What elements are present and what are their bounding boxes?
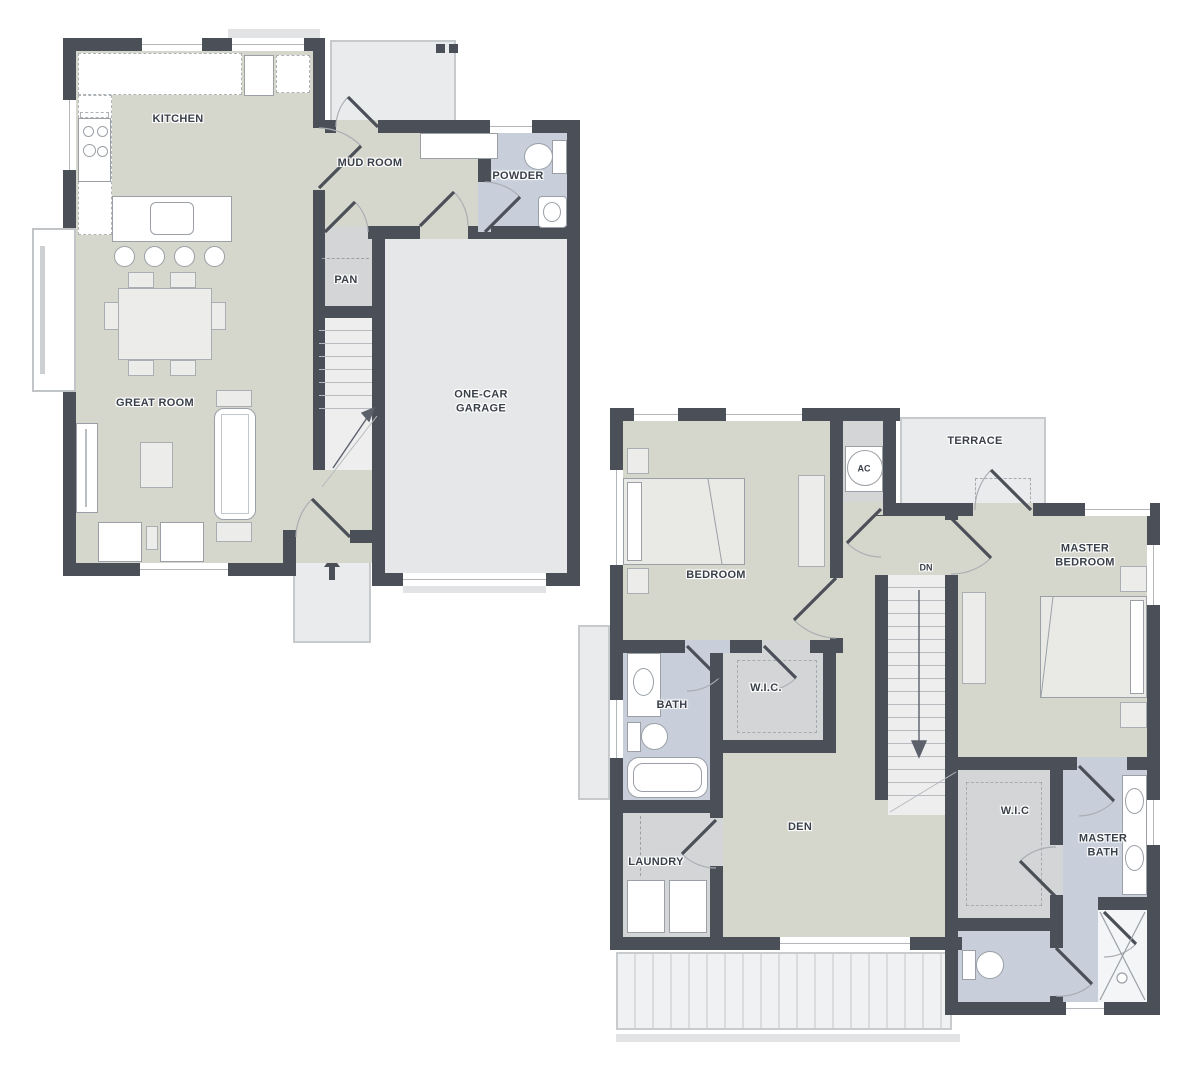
nightstand (1120, 566, 1147, 592)
window (232, 38, 304, 51)
dining-chair (128, 360, 154, 376)
coffee-table (140, 442, 173, 488)
wall-segment (372, 226, 385, 586)
kitchen-appliance (276, 55, 310, 93)
sink-basin (543, 202, 561, 222)
wall-segment (610, 800, 723, 813)
toilet-tank (962, 950, 976, 980)
wall-segment (1098, 897, 1160, 910)
bar-stool (174, 246, 195, 267)
stairs-treads (888, 575, 945, 800)
master-wic-label: W.I.C (1001, 805, 1029, 819)
bath-label: BATH (657, 699, 688, 713)
window (140, 563, 228, 576)
toilet-bowl (641, 723, 668, 750)
bar-stool (114, 246, 135, 267)
entry-arrow-stem (329, 566, 335, 580)
door-opening (710, 818, 723, 866)
shower-floor (1098, 910, 1147, 1002)
window (1085, 503, 1150, 516)
bay-window (32, 228, 76, 392)
closet-dashed-outline (966, 782, 1042, 906)
pillow (627, 482, 642, 561)
window (1066, 1002, 1104, 1015)
patio-post (436, 44, 445, 53)
wic-label: W.I.C. (750, 682, 782, 696)
deck (616, 952, 952, 1030)
door-opening (945, 520, 958, 575)
pantry-shelf-dashline (322, 258, 369, 260)
stairs-treads (319, 318, 372, 416)
garage-label: ONE-CAR GARAGE (445, 388, 517, 416)
pillow (1130, 600, 1144, 694)
toilet-tank (627, 722, 641, 752)
wall-segment (875, 575, 888, 800)
master-bedroom-label: MASTER BEDROOM (1044, 542, 1126, 570)
dining-chair (211, 302, 226, 330)
window (63, 100, 76, 170)
master-bath-label: MASTER BATH (1073, 832, 1133, 860)
door-opening (685, 640, 730, 653)
pantry-floor (319, 239, 372, 306)
patio (330, 40, 456, 128)
wall-segment (945, 1002, 1160, 1015)
window (490, 120, 532, 133)
front-doorway-floor (296, 530, 350, 563)
nightstand (1120, 702, 1147, 728)
wall-segment (945, 757, 1160, 770)
wall-segment (313, 306, 385, 318)
armchair (160, 522, 204, 562)
door-opening (313, 128, 325, 190)
pantry-label: PAN (334, 274, 357, 288)
window (1147, 800, 1160, 845)
burner (97, 126, 108, 137)
window (634, 408, 678, 421)
washer (627, 880, 665, 933)
window (610, 470, 623, 565)
fireplace-media-unit (76, 423, 98, 513)
nightstand (627, 568, 649, 594)
dining-chair (170, 272, 196, 288)
window (726, 408, 802, 421)
bedroom-label: BEDROOM (686, 569, 746, 583)
garage-door (403, 573, 546, 586)
wall-segment (710, 740, 836, 753)
laundry-label: LAUNDRY (628, 856, 683, 870)
armchair (98, 522, 142, 562)
bar-stool (204, 246, 225, 267)
burner (83, 144, 96, 157)
window (142, 38, 202, 51)
refrigerator (244, 55, 274, 96)
dresser (962, 592, 986, 684)
toilet-bowl (976, 951, 1004, 979)
window (610, 700, 623, 758)
sink-basin (633, 668, 654, 696)
door-opening (843, 502, 883, 515)
kitchen-counter (78, 53, 242, 95)
garage-door-sill (403, 586, 546, 593)
door-opening (973, 503, 1033, 516)
door-opening (325, 226, 368, 239)
wall-segment (945, 918, 1063, 931)
powder-label: POWDER (492, 170, 543, 184)
patio-post (449, 44, 458, 53)
fireplace-line (85, 429, 87, 507)
terrace-landing (975, 478, 1031, 504)
deck-edge (616, 1034, 960, 1042)
end-table (216, 522, 252, 542)
mud-room-bench (420, 133, 498, 159)
mud-room-label: MUD ROOM (338, 157, 403, 171)
dresser (798, 475, 825, 567)
door-opening (1077, 757, 1127, 770)
burner (97, 146, 108, 157)
door-opening (420, 226, 468, 239)
door-opening (336, 120, 378, 133)
dining-chair (128, 272, 154, 288)
ac-label: AC (858, 463, 871, 474)
door-opening (478, 182, 491, 232)
bathtub-inner (633, 763, 702, 792)
wall-segment (710, 640, 723, 950)
terrace-label: TERRACE (947, 435, 1002, 449)
island-sink (150, 202, 194, 235)
door-opening (1050, 845, 1063, 895)
great-room-label: GREAT ROOM (116, 397, 194, 411)
closet-dashed-outline (737, 660, 817, 733)
toilet-bowl (524, 143, 553, 170)
door-opening (830, 578, 843, 638)
wall-segment (883, 408, 896, 515)
dining-table (118, 288, 212, 360)
bay-window-glass (40, 246, 45, 374)
end-table (216, 390, 252, 407)
sliding-door (780, 937, 910, 950)
dryer (669, 880, 707, 933)
lower-roof (578, 625, 610, 800)
stove-knobs (80, 112, 109, 118)
door-opening (762, 640, 810, 653)
wall-segment (823, 653, 836, 753)
toilet-tank (552, 140, 567, 174)
nightstand (627, 448, 649, 474)
den-label: DEN (788, 821, 812, 835)
wall-segment (567, 120, 580, 586)
kitchen-label: KITCHEN (153, 113, 204, 127)
wall-segment (283, 530, 296, 576)
side-table (146, 526, 158, 550)
door-opening (1050, 948, 1063, 996)
sink-basin (1125, 788, 1144, 814)
sofa-cushions (221, 414, 249, 514)
bar-stool (144, 246, 165, 267)
window (1147, 545, 1160, 605)
floorplan-canvas: KITCHEN MUD ROOM POWDER PAN GREAT ROOM O… (0, 0, 1200, 1070)
dining-chair (104, 302, 119, 330)
burner (83, 126, 94, 137)
stairs-down-label: DN (920, 562, 933, 573)
dining-chair (170, 360, 196, 376)
